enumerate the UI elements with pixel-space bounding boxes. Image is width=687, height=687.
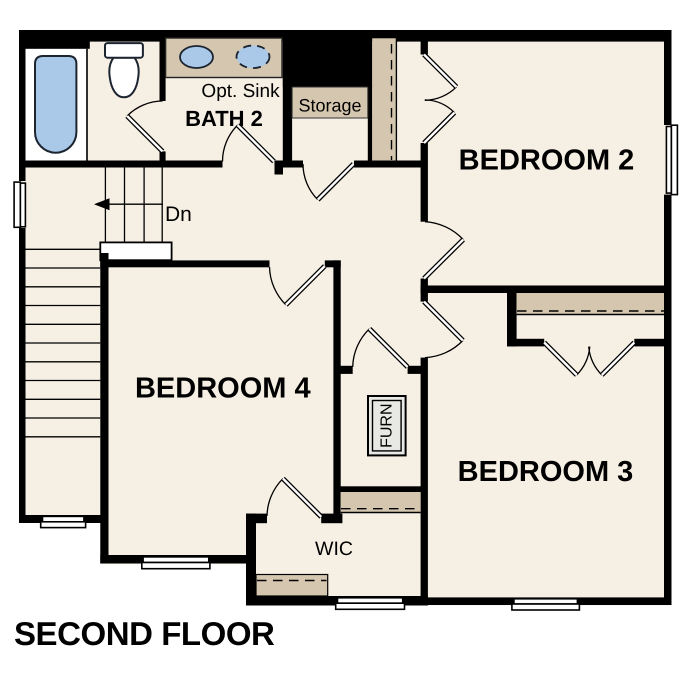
svg-text:SECOND FLOOR: SECOND FLOOR [14, 615, 275, 652]
svg-text:BATH 2: BATH 2 [185, 106, 263, 131]
svg-text:FURN: FURN [378, 403, 395, 447]
svg-text:Storage: Storage [298, 96, 361, 116]
svg-text:Dn: Dn [165, 203, 192, 226]
svg-text:WIC: WIC [315, 538, 353, 560]
svg-text:BEDROOM 2: BEDROOM 2 [459, 145, 635, 177]
svg-text:BEDROOM 4: BEDROOM 4 [135, 373, 311, 405]
svg-text:Opt. Sink: Opt. Sink [201, 81, 280, 102]
svg-text:BEDROOM 3: BEDROOM 3 [458, 456, 634, 488]
